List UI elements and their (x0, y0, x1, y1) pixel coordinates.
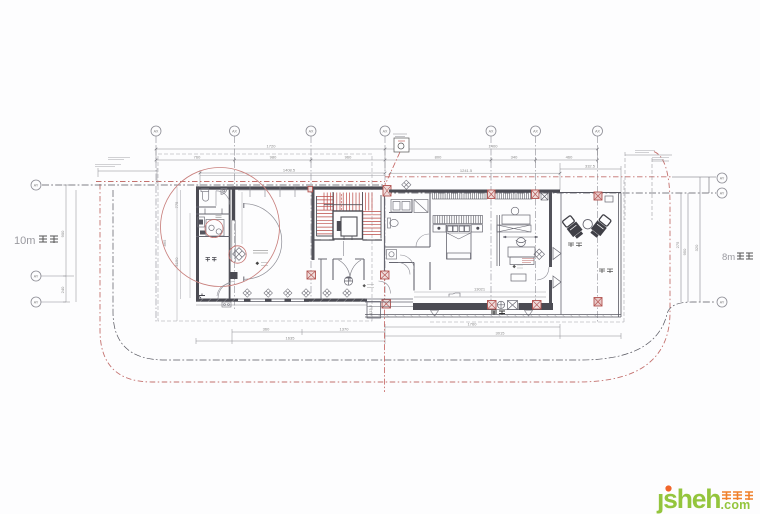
svg-text:775: 775 (174, 201, 179, 208)
svg-text:AX: AX (383, 130, 388, 134)
svg-text:10m: 10m (14, 235, 35, 247)
svg-text:AY: AY (720, 301, 725, 305)
svg-text:AY: AY (720, 177, 725, 181)
svg-text:800: 800 (435, 155, 442, 160)
svg-text:AX: AX (154, 130, 159, 134)
svg-text:3015: 3015 (496, 331, 506, 336)
svg-text:13021: 13021 (474, 287, 486, 292)
svg-text:1370: 1370 (340, 327, 350, 332)
svg-text:1408.5: 1408.5 (283, 168, 296, 173)
svg-text:AY: AY (34, 184, 39, 188)
svg-text:980: 980 (270, 155, 277, 160)
svg-text:413.5: 413.5 (368, 304, 373, 315)
svg-text:275: 275 (675, 241, 680, 248)
svg-text:AY: AY (34, 275, 39, 279)
svg-text:.com: .com (721, 498, 751, 512)
svg-text:AX: AX (489, 130, 494, 134)
svg-text:320: 320 (694, 244, 699, 251)
svg-text:8m: 8m (722, 252, 735, 263)
svg-text:AX: AX (232, 130, 237, 134)
svg-text:960: 960 (345, 155, 352, 160)
svg-text:900: 900 (60, 230, 65, 237)
svg-text:AY: AY (34, 301, 39, 305)
svg-text:1241.5: 1241.5 (460, 168, 473, 173)
svg-text:AX: AX (595, 130, 600, 134)
svg-text:340: 340 (511, 155, 518, 160)
svg-text:360: 360 (263, 327, 270, 332)
svg-text:760: 760 (194, 155, 201, 160)
svg-text:460: 460 (566, 155, 573, 160)
svg-text:AX: AX (533, 130, 538, 134)
svg-text:1400: 1400 (489, 144, 499, 149)
svg-text:AX: AX (309, 130, 314, 134)
svg-text:950: 950 (682, 248, 687, 255)
svg-text:1720: 1720 (267, 144, 277, 149)
svg-text:1635: 1635 (286, 336, 296, 341)
svg-text:240: 240 (60, 286, 65, 293)
svg-text:AY: AY (720, 192, 725, 196)
svg-text:332.5: 332.5 (585, 164, 596, 169)
